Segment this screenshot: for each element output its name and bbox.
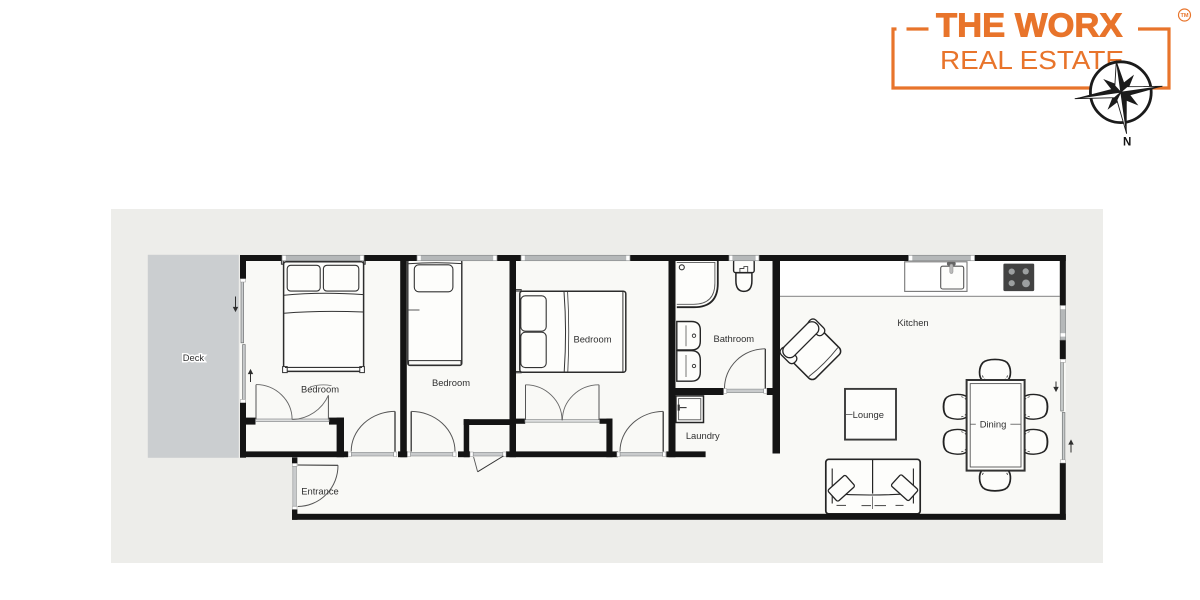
svg-text:Bedroom: Bedroom <box>573 333 611 344</box>
svg-text:Entrance: Entrance <box>301 486 339 497</box>
svg-text:Kitchen: Kitchen <box>897 317 928 328</box>
svg-text:Bedroom: Bedroom <box>301 383 339 394</box>
svg-text:N: N <box>1123 137 1131 149</box>
svg-text:Laundry: Laundry <box>686 430 720 441</box>
svg-text:Bathroom: Bathroom <box>713 333 754 344</box>
svg-text:REAL ESTATE: REAL ESTATE <box>940 45 1124 75</box>
svg-text:Bedroom: Bedroom <box>432 377 470 388</box>
svg-text:THE WORX: THE WORX <box>936 8 1123 45</box>
svg-text:Dining: Dining <box>980 419 1007 430</box>
svg-text:Lounge: Lounge <box>853 409 884 420</box>
svg-text:TM: TM <box>1180 13 1188 19</box>
svg-text:Deck: Deck <box>183 352 205 363</box>
